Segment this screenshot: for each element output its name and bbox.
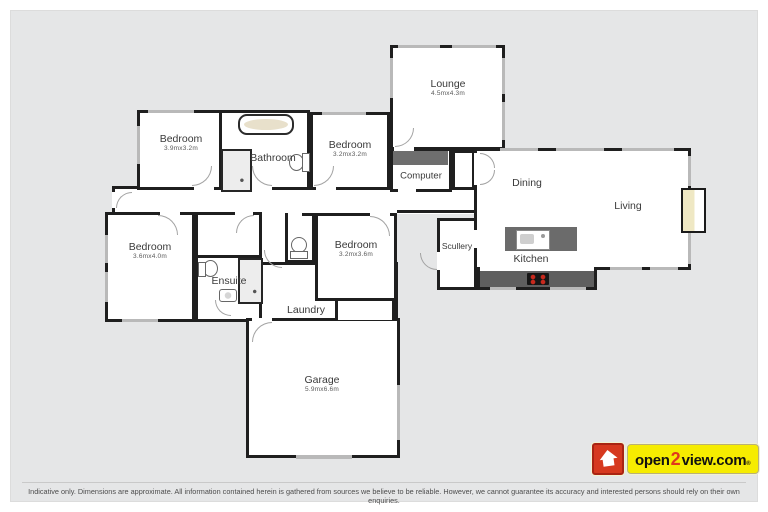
room-name: Garage	[304, 374, 339, 386]
window	[490, 287, 516, 290]
window	[688, 232, 691, 264]
room-name: Computer	[400, 171, 442, 182]
label-laundry: Laundry	[287, 304, 325, 316]
room-name: Bedroom	[129, 241, 172, 253]
stove-icon	[527, 273, 549, 285]
logo-text-viewcom: view.com	[682, 447, 747, 475]
room-dims: 3.6mx4.0m	[129, 253, 172, 260]
label-bedroom-top-mid: Bedroom 3.2mx3.2m	[329, 139, 372, 159]
disclaimer-text: Indicative only. Dimensions are approxim…	[22, 482, 746, 505]
room-name: Bedroom	[160, 133, 203, 145]
label-bedroom-top-left: Bedroom 3.9mx3.2m	[160, 133, 203, 153]
house-icon	[592, 443, 624, 475]
window	[137, 126, 140, 164]
room-name: Living	[614, 200, 641, 212]
label-bathroom: Bathroom	[250, 152, 296, 164]
door-opening	[194, 186, 214, 191]
fireplace-icon	[681, 188, 706, 233]
room-name: Scullery	[442, 241, 472, 251]
logo-text-open: open	[635, 447, 670, 475]
label-lounge: Lounge 4.5mx4.3m	[430, 78, 465, 98]
room-dims: 3.2mx3.2m	[329, 151, 372, 158]
room-name: Ensuite	[211, 275, 246, 287]
room-dims: 5.9mx6.6m	[304, 386, 339, 393]
room-dims: 3.2mx3.6m	[335, 251, 378, 258]
floor-plan-page: Bedroom 3.9mx3.2m Bathroom Bedroom 3.2mx…	[0, 0, 768, 512]
window	[322, 112, 366, 115]
garage-door	[296, 455, 352, 459]
window	[148, 110, 194, 113]
label-dining: Dining	[512, 177, 542, 189]
room-name: Bedroom	[329, 139, 372, 151]
toilet-tank-icon	[302, 153, 310, 172]
door-opening-entry	[112, 192, 115, 208]
room-scullery	[437, 218, 477, 290]
window	[452, 45, 496, 48]
logo-text-2: 2	[670, 445, 682, 473]
sink-icon	[516, 230, 550, 250]
logo-wordmark: open2view.com®	[627, 444, 759, 474]
window	[502, 102, 505, 140]
window	[688, 156, 691, 186]
door-opening	[398, 188, 416, 193]
window	[650, 267, 678, 270]
label-bedroom-left: Bedroom 3.6mx4.0m	[129, 241, 172, 261]
bathtub-icon	[238, 114, 294, 135]
room-bedroom-left	[105, 212, 195, 322]
window	[397, 385, 400, 440]
room-living-dining	[474, 148, 691, 270]
toilet-tank-icon	[198, 262, 206, 277]
door-opening-scullery	[474, 230, 480, 248]
room-dims: 3.9mx3.2m	[160, 145, 203, 152]
shower-icon	[221, 149, 252, 192]
registered-mark: ®	[746, 459, 750, 469]
room-name: Kitchen	[513, 253, 548, 265]
basin-icon	[219, 289, 237, 302]
toilet-tank-icon	[290, 251, 308, 259]
window	[390, 58, 393, 98]
window	[105, 272, 108, 302]
window	[122, 319, 158, 322]
window	[610, 267, 642, 270]
room-name: Lounge	[430, 78, 465, 90]
label-kitchen: Kitchen	[513, 253, 548, 265]
door-opening	[250, 186, 272, 191]
label-bedroom-mid: Bedroom 3.2mx3.6m	[335, 239, 378, 259]
wall	[112, 186, 140, 189]
wall	[397, 210, 475, 213]
room-closet	[452, 150, 475, 190]
room-name: Laundry	[287, 304, 325, 316]
room-name: Bedroom	[335, 239, 378, 251]
computer-desk	[393, 151, 448, 165]
room-name: Bathroom	[250, 152, 296, 164]
door-opening-back	[437, 252, 440, 270]
window	[622, 148, 674, 151]
window	[550, 287, 586, 290]
label-scullery: Scullery	[442, 242, 472, 252]
window	[502, 58, 505, 94]
open2view-logo[interactable]: open2view.com®	[592, 443, 759, 475]
label-garage: Garage 5.9mx6.6m	[304, 374, 339, 394]
label-ensuite: Ensuite	[211, 275, 246, 287]
window	[398, 45, 440, 48]
door-opening	[316, 186, 336, 191]
room-dims: 4.5mx4.3m	[430, 90, 465, 97]
window	[500, 148, 538, 151]
door-opening	[288, 213, 302, 217]
window	[105, 235, 108, 263]
garage-entry-step	[335, 298, 395, 320]
window	[556, 148, 604, 151]
room-name: Dining	[512, 177, 542, 189]
label-living: Living	[614, 200, 641, 212]
label-computer: Computer	[400, 172, 442, 183]
